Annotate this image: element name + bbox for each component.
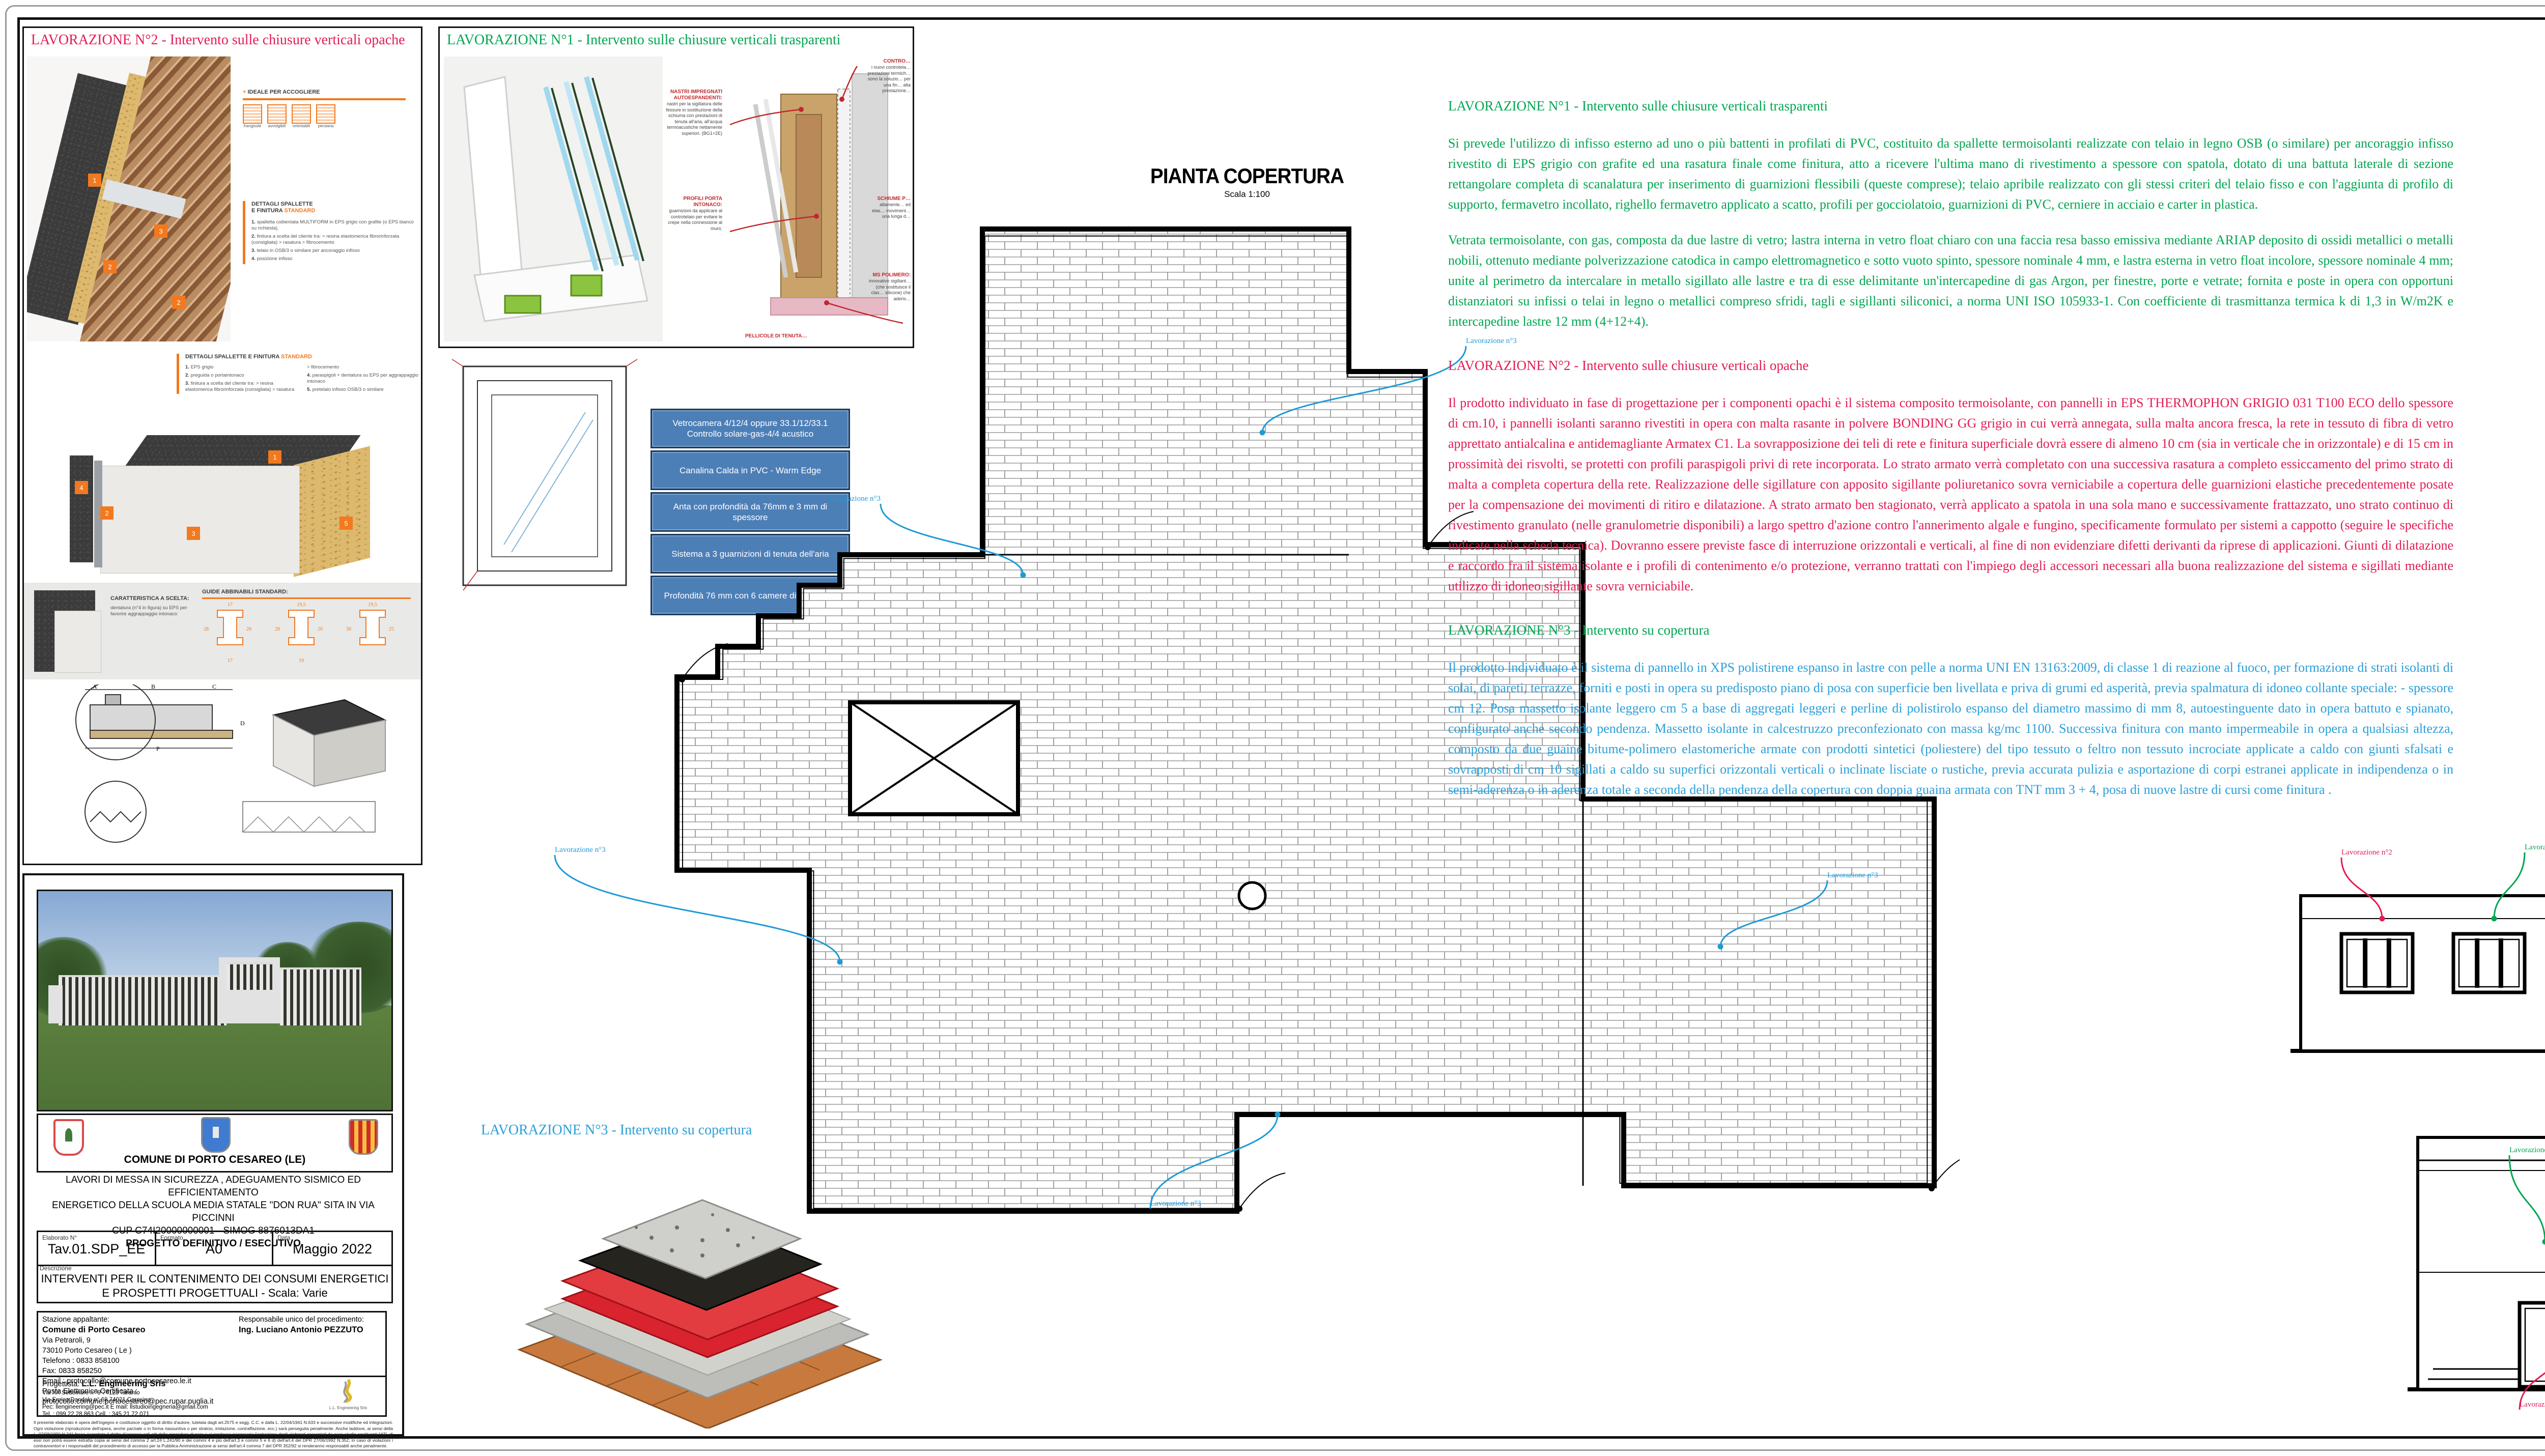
svg-text:A: A <box>93 684 97 690</box>
flag-2: 2 <box>103 260 117 273</box>
drawing-sheet: LAVORAZIONE N°2 - Intervento sulle chius… <box>0 0 2545 1456</box>
svg-text:17: 17 <box>228 658 233 664</box>
svg-text:20: 20 <box>246 626 251 632</box>
flag-3: 3 <box>187 527 200 540</box>
shading-icon <box>267 104 287 124</box>
lecce-crest-icon <box>349 1119 378 1155</box>
elevation-sx: PROSPETTO SX Scala 1:100 Lavorazione n°1… <box>2525 374 2545 723</box>
progettista-name: L.L. Engineering Srls <box>81 1379 165 1388</box>
spec-paragraph-2: Il prodotto individuato in fase di proge… <box>1448 393 2453 596</box>
elev-front-drawing: Lavorazione n°1Lavorazione n°2Lavorazion… <box>2392 1084 2545 1440</box>
dettagli-item: 2. preguida o portaintonaco <box>185 373 298 379</box>
dettagli-item: 2. finitura a scelta del cliente tra: > … <box>251 234 419 246</box>
svg-text:25: 25 <box>389 626 394 632</box>
svg-text:19,5: 19,5 <box>368 602 377 608</box>
svg-text:P: P <box>156 745 160 752</box>
comune-name: COMUNE DI PORTO CESAREO (LE) <box>38 1154 391 1166</box>
specification-text-column: LAVORAZIONE N°1 - Intervento sulle chius… <box>1448 96 2453 815</box>
svg-text:20: 20 <box>318 626 323 632</box>
ideale-icon-row: frangisoleavvolgibiliorientabilipersiana <box>243 104 411 128</box>
elev-dx-scale: Scala 1:100 <box>2535 71 2545 81</box>
spec-heading-3: LAVORAZIONE N°3 - Intervento su copertur… <box>1448 620 2453 640</box>
dettagli-item: 4. posizione infisso <box>251 256 419 262</box>
svg-text:Lavorazione n°2: Lavorazione n°2 <box>2520 1401 2545 1409</box>
svg-text:Lavorazione n°3: Lavorazione n°3 <box>555 846 606 854</box>
progettista-cell: Progettista: L.L. Engineering Srls Via X… <box>37 1377 387 1417</box>
ideale-item: avvolgibili <box>267 104 287 128</box>
title-block: COMUNE DI PORTO CESAREO (LE) LAVORI DI M… <box>22 873 404 1436</box>
spec-paragraph-1b: Vetrata termoisolante, con gas, composta… <box>1448 230 2453 332</box>
elaborato-value: Tav.01.SDP_EE <box>42 1241 151 1257</box>
ideale-item: orientabili <box>292 104 311 128</box>
shading-icon <box>316 104 335 124</box>
annotation-nastri: NASTRI IMPREGNATI AUTOESPANDENTI: nastri… <box>664 89 722 136</box>
guide-band: CARATTERISTICA A SCELTA: dentatura (n°4 … <box>24 583 421 679</box>
elev-front-title: PROSPETTO FRONTALE <box>2449 1048 2545 1073</box>
data-value: Maggio 2022 <box>277 1241 387 1257</box>
svg-text:Lavorazione n°1: Lavorazione n°1 <box>2525 843 2545 851</box>
guide-profiles-drawing: 1728201719,528201919,53025 <box>202 600 406 666</box>
rup-name: Ing. Luciano Antonio PEZZUTO <box>239 1325 363 1334</box>
spec-heading-2: LAVORAZIONE N°2 - Intervento sulle chius… <box>1448 355 2453 376</box>
caratteristica-text: dentatura (n°4 in figura) su EPS per fav… <box>110 605 192 617</box>
elev-post-title: PROSPETTO POSTERIORE <box>2341 730 2545 755</box>
elev-dx-drawing: Lavorazione n°2Lavorazione n°1Lavorazion… <box>2535 81 2545 392</box>
svg-text:30: 30 <box>346 626 351 632</box>
svg-text:28: 28 <box>204 626 209 632</box>
shading-icon <box>292 104 311 124</box>
technical-section-sketches: ABCDP <box>29 684 416 858</box>
elev-front-scale: Scala 1:100 <box>2392 1074 2545 1084</box>
shading-icon <box>243 104 262 124</box>
dettagli-item: 1. EPS grigio <box>185 364 298 370</box>
lav3-caption: LAVORAZIONE N°3 - Intervento su copertur… <box>481 1122 752 1138</box>
elevation-frontale: PROSPETTO FRONTALE Scala 1:100 Lavorazio… <box>2392 1048 2545 1443</box>
flag-3: 3 <box>154 224 167 238</box>
elev-post-drawing: Lavorazione n°2Lavorazione n°1Lavorazion… <box>2280 766 2545 1071</box>
ideale-item: persiana <box>316 104 335 128</box>
stazione-cell: Stazione appaltante: Comune di Porto Ces… <box>37 1311 387 1377</box>
svg-text:Lavorazione n°2: Lavorazione n°2 <box>2341 848 2392 857</box>
svg-text:19,5: 19,5 <box>297 602 306 608</box>
svg-text:17: 17 <box>228 602 233 608</box>
flag-2b: 2 <box>172 296 185 309</box>
render-image <box>37 890 393 1111</box>
svg-text:D: D <box>240 720 245 727</box>
svg-text:28: 28 <box>275 626 280 632</box>
svg-text:Lavorazione n°3: Lavorazione n°3 <box>830 495 881 503</box>
svg-text:Lavorazione n°3: Lavorazione n°3 <box>1150 1200 1201 1208</box>
pianta-scale: Scala 1:100 <box>1043 189 1451 199</box>
dettagli-item: 4. paraspigoli + dentatura su EPS per ag… <box>307 373 419 385</box>
dettagli-item: 5. pretelaio infisso OSB/3 o similare <box>307 387 419 393</box>
elev-sx-drawing: Lavorazione n°1Lavorazione n°2Lavorazion… <box>2525 410 2545 720</box>
meta-row: Elaborato N° Tav.01.SDP_EE Formato A0 Da… <box>37 1231 393 1266</box>
ideale-item: frangisole <box>243 104 262 128</box>
flag-2: 2 <box>100 506 114 520</box>
dettagli1-list: 1. spalletta coibentata MULTIFORM in EPS… <box>251 219 419 262</box>
descrizione-cell: Descrizione INTERVENTI PER IL CONTENIMEN… <box>37 1263 393 1303</box>
elev-post-scale: Scala 1:100 <box>2280 756 2545 766</box>
panel2-title: LAVORAZIONE N°2 - Intervento sulle chius… <box>31 32 405 48</box>
ll-engineering-logo: L.L. Engineering Srls <box>315 1379 381 1410</box>
puglia-crest-icon <box>53 1119 84 1156</box>
flag-5: 5 <box>340 517 353 530</box>
flag-4: 4 <box>75 481 88 494</box>
svg-text:19: 19 <box>299 658 304 664</box>
dettagli2-annotation: DETTAGLI SPALLETTE E FINITURA STANDARD 1… <box>177 354 419 394</box>
dettagli1-annotation: DETTAGLI SPALLETTE E FINITURA STANDARD 1… <box>243 201 419 264</box>
flag-1: 1 <box>268 450 281 464</box>
ideale-annotation: + IDEALE PER ACCOGLIERE frangisoleavvolg… <box>243 89 411 128</box>
elev-sx-scale: Scala 1:100 <box>2525 399 2545 410</box>
svg-text:C: C <box>212 684 216 690</box>
svg-text:B: B <box>151 684 155 690</box>
ideale-title: + IDEALE PER ACCOGLIERE <box>243 89 411 96</box>
annotation-controtelai: CONTRO… i nuovi controtela… prestazioni … <box>862 59 911 94</box>
elevation-dx: PROSPETTO DX Scala 1:100 Lavorazione n°2… <box>2535 46 2545 394</box>
flag-1: 1 <box>88 174 101 187</box>
comune-header: COMUNE DI PORTO CESAREO (LE) <box>37 1114 393 1173</box>
copyright-disclaimer: Il presente elaborato è opera dell'ingeg… <box>34 1420 393 1449</box>
pianta-title: PIANTA COPERTURA <box>1060 164 1434 188</box>
annotation-schiume: SCHIUME P… altamente… ed elas… moviment…… <box>870 196 911 220</box>
spec-paragraph-1a: Si prevede l'utilizzo di infisso esterno… <box>1448 133 2453 215</box>
porto-cesareo-crest-icon <box>201 1117 231 1153</box>
panel1-title: LAVORAZIONE N°1 - Intervento sulle chius… <box>447 32 840 48</box>
spalletta-cutaway-illustration: 1 2 3 2 <box>27 56 231 341</box>
roof-package-illustration <box>484 1151 896 1429</box>
eps-block-illustration: 1 4 2 3 5 <box>54 435 390 578</box>
dettagli-item: 1. spalletta coibentata MULTIFORM in EPS… <box>251 219 419 232</box>
caratteristica-title: CARATTERISTICA A SCELTA: <box>110 595 192 602</box>
svg-text:Lavorazione n°3: Lavorazione n°3 <box>1827 871 1878 879</box>
elevation-posteriore: PROSPETTO POSTERIORE Scala 1:100 Lavoraz… <box>2280 730 2545 1074</box>
panel-lavorazione-2: LAVORAZIONE N°2 - Intervento sulle chius… <box>22 26 422 865</box>
stazione-name: Comune di Porto Cesareo <box>42 1325 146 1334</box>
formato-value: A0 <box>160 1241 268 1257</box>
dettagli2-list: 1. EPS grigio2. preguida o portaintonaco… <box>185 364 419 394</box>
spec-heading-1: LAVORAZIONE N°1 - Intervento sulle chius… <box>1448 96 2453 116</box>
pianta-title-block: PIANTA COPERTURA Scala 1:100 <box>1043 164 1451 199</box>
orange-rule <box>243 98 406 100</box>
dettagli-item: 3. telaio in OSB/3 o similare per ancora… <box>251 248 419 254</box>
svg-text:Lavorazione n°1: Lavorazione n°1 <box>2509 1146 2545 1154</box>
